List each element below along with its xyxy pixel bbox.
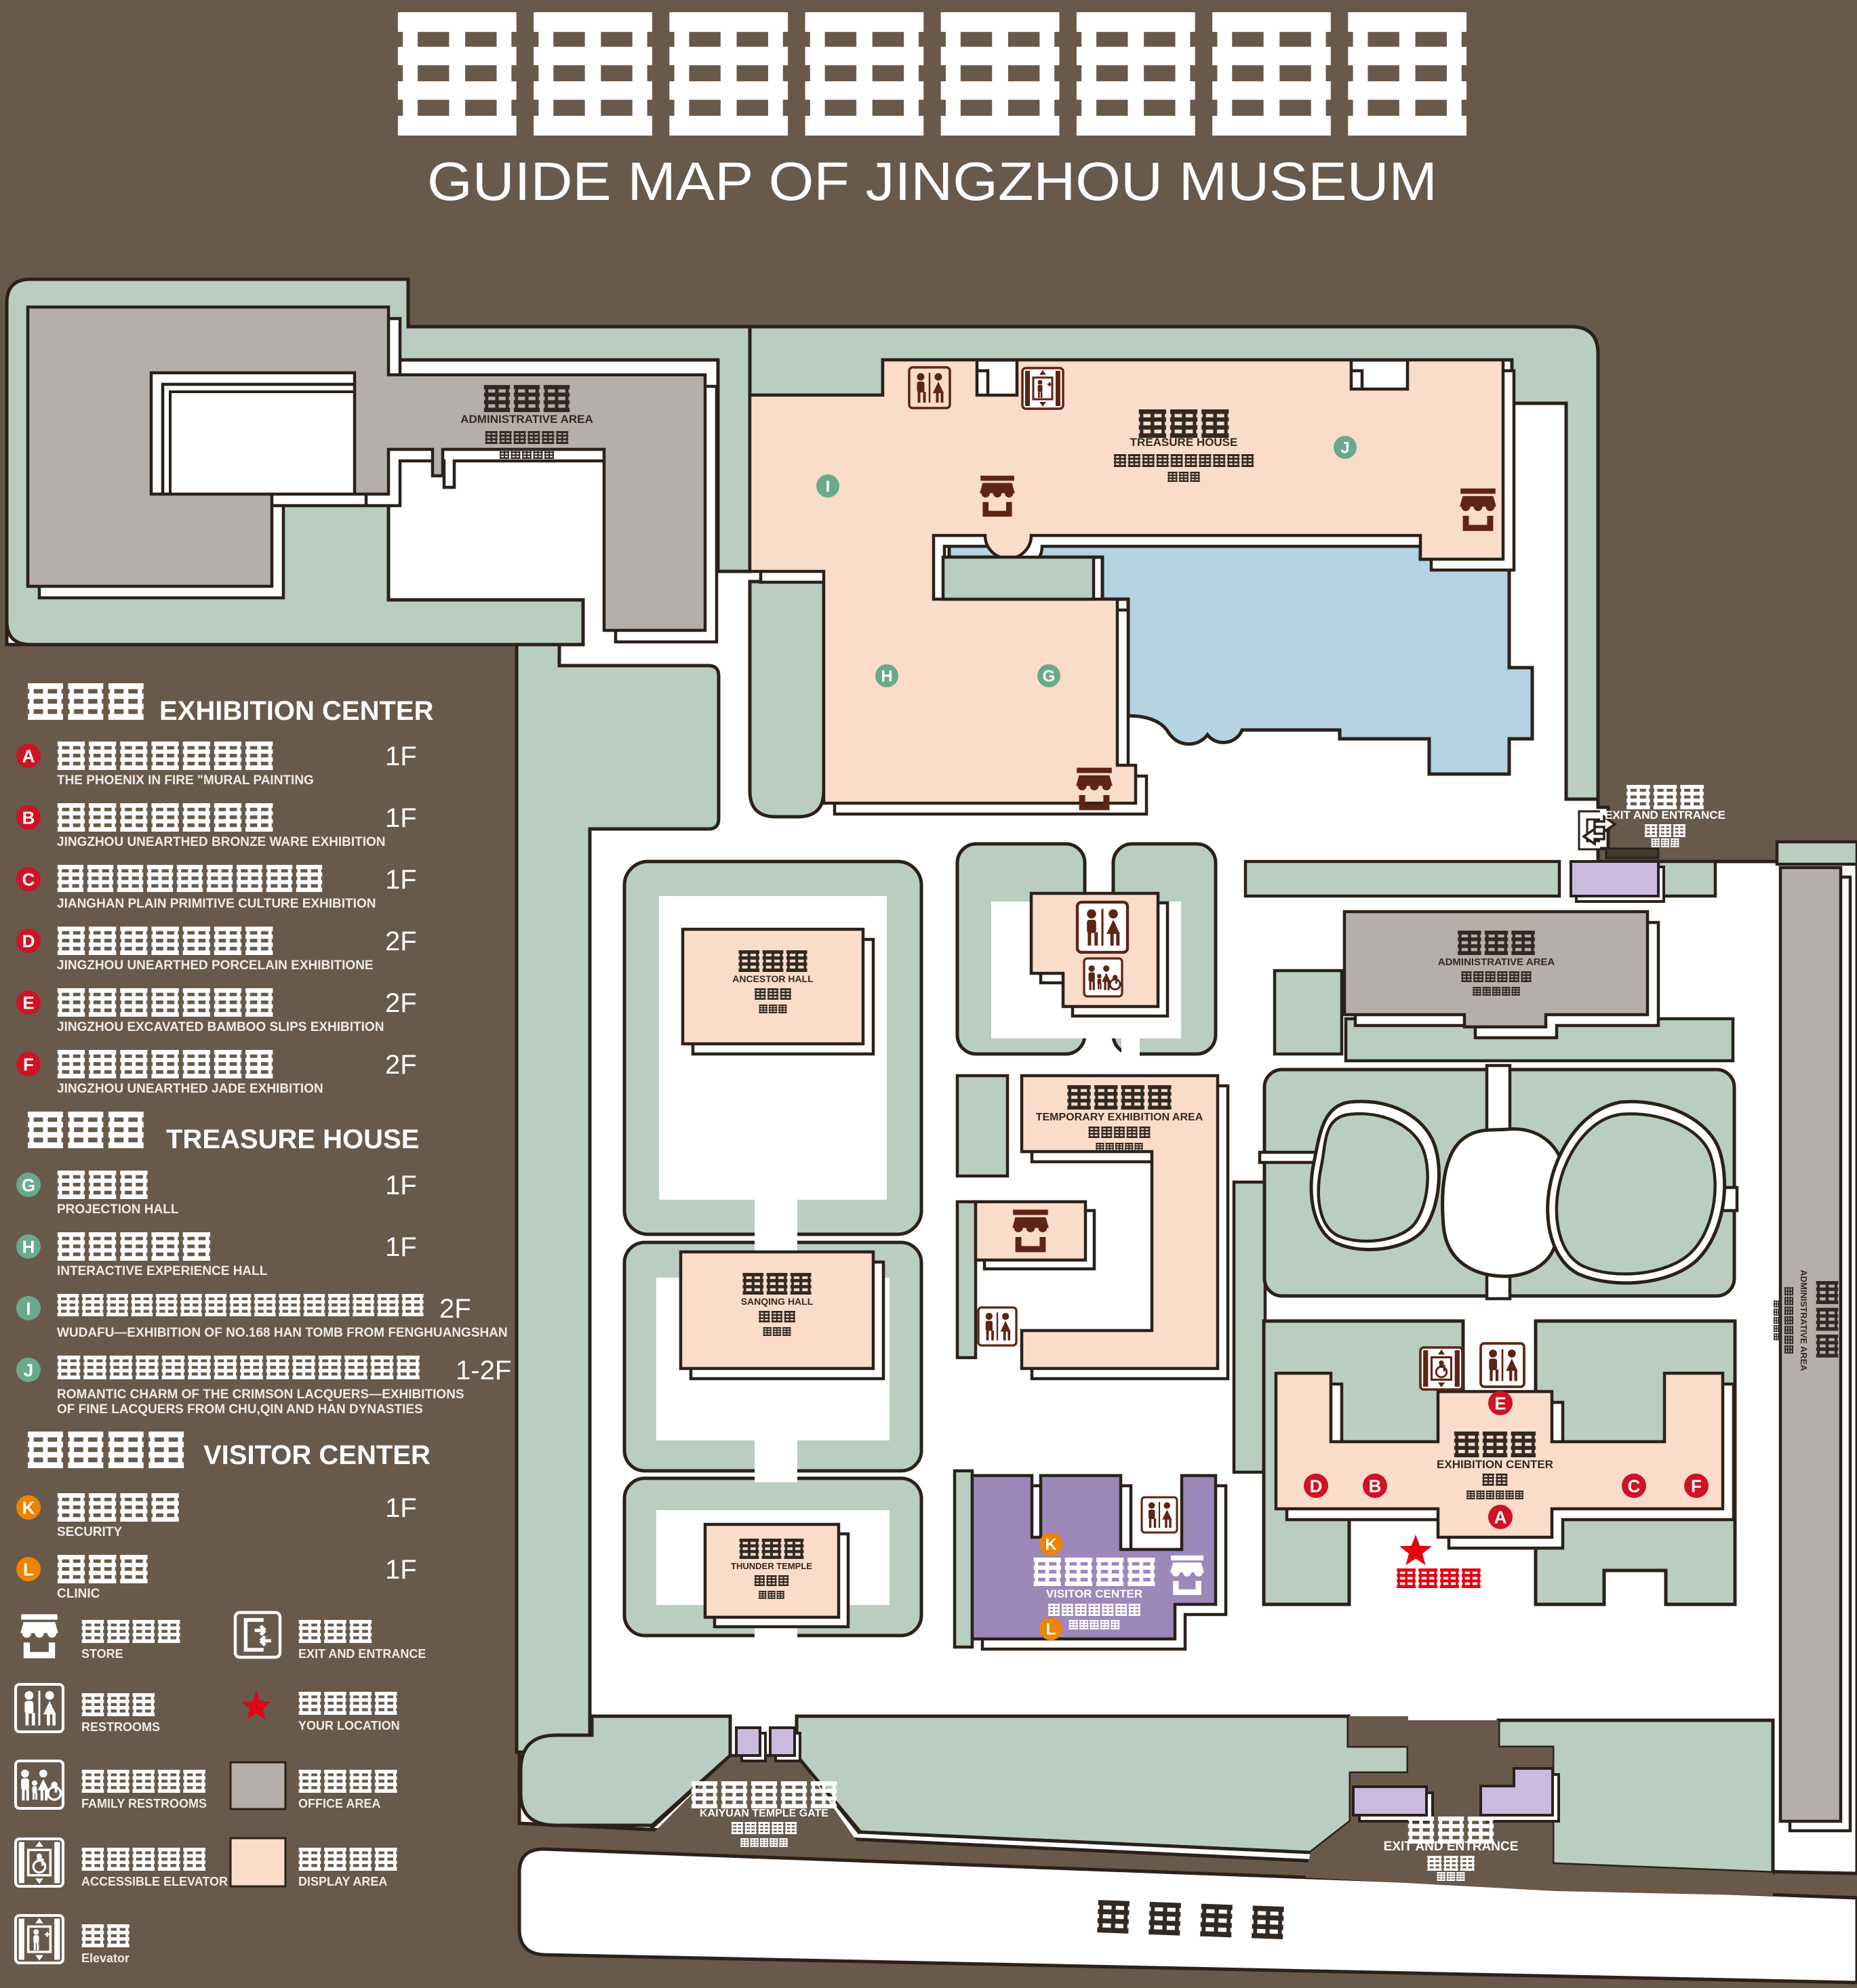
svg-text:VISITOR CENTER: VISITOR CENTER [203,1440,431,1470]
svg-text:2F: 2F [385,988,417,1018]
svg-text:E: E [22,992,34,1013]
svg-text:EXIT AND ENTRANCE: EXIT AND ENTRANCE [1384,1840,1519,1854]
svg-text:EXIT AND ENTRANCE: EXIT AND ENTRANCE [1605,809,1725,821]
svg-text:JINGZHOU UNEARTHED PORCELAIN E: JINGZHOU UNEARTHED PORCELAIN EXHIBITIONE [57,958,374,973]
svg-text:1F: 1F [385,1232,417,1262]
svg-text:KAIYUAN TEMPLE GATE: KAIYUAN TEMPLE GATE [700,1808,828,1819]
svg-text:CLINIC: CLINIC [57,1587,100,1601]
svg-text:I: I [26,1298,31,1318]
svg-text:WUDAFU—EXHIBITION OF NO.168 HA: WUDAFU—EXHIBITION OF NO.168 HAN TOMB FRO… [57,1326,508,1340]
svg-text:GUIDE MAP OF JINGZHOU MUSEUM: GUIDE MAP OF JINGZHOU MUSEUM [427,151,1437,211]
svg-text:F: F [1691,1476,1702,1496]
svg-text:H: H [22,1236,35,1257]
svg-text:ADMINISTRATIVE AREA: ADMINISTRATIVE AREA [460,413,593,426]
svg-text:I: I [826,478,831,496]
svg-text:YOUR LOCATION: YOUR LOCATION [298,1719,400,1732]
svg-text:FAMILY RESTROOMS: FAMILY RESTROOMS [81,1797,207,1810]
svg-text:A: A [22,746,35,766]
svg-text:ANCESTOR HALL: ANCESTOR HALL [732,973,814,984]
svg-text:D: D [22,931,35,951]
svg-text:OFFICE AREA: OFFICE AREA [298,1797,380,1810]
svg-text:TEMPORARY EXHIBITION AREA: TEMPORARY EXHIBITION AREA [1036,1112,1203,1123]
svg-text:1F: 1F [385,865,417,895]
svg-text:C: C [1628,1476,1641,1496]
svg-text:THE PHOENIX IN FIRE "MURAL PAI: THE PHOENIX IN FIRE "MURAL PAINTING [57,773,314,788]
svg-text:J: J [1340,439,1349,458]
svg-text:SECURITY: SECURITY [57,1525,122,1539]
svg-text:2F: 2F [385,927,417,956]
svg-text:A: A [1494,1507,1507,1527]
svg-text:INTERACTIVE EXPERIENCE HALL: INTERACTIVE EXPERIENCE HALL [57,1264,268,1278]
svg-text:EXHIBITION CENTER: EXHIBITION CENTER [1437,1458,1553,1471]
svg-text:ACCESSIBLE ELEVATOR: ACCESSIBLE ELEVATOR [81,1875,228,1888]
svg-text:L: L [1046,1621,1056,1639]
svg-text:SANQING HALL: SANQING HALL [741,1296,814,1307]
svg-text:EXHIBITION CENTER: EXHIBITION CENTER [159,696,434,726]
svg-text:RESTROOMS: RESTROOMS [81,1720,160,1734]
svg-text:ROMANTIC CHARM OF THE CRIMSON: ROMANTIC CHARM OF THE CRIMSON LACQUERS—E… [57,1387,464,1402]
svg-text:JINGZHOU UNEARTHED JADE EXHIBI: JINGZHOU UNEARTHED JADE EXHIBITION [57,1082,323,1096]
svg-text:TREASURE HOUSE: TREASURE HOUSE [166,1124,419,1154]
svg-text:OF FINE LACQUERS FROM CHU,QIN: OF FINE LACQUERS FROM CHU,QIN AND HAN DY… [57,1402,423,1417]
svg-text:1F: 1F [385,1171,417,1200]
svg-text:H: H [881,668,892,686]
svg-text:1F: 1F [385,742,417,771]
svg-text:VISITOR CENTER: VISITOR CENTER [1046,1587,1142,1600]
svg-text:J: J [24,1360,33,1380]
svg-text:G: G [22,1175,35,1195]
svg-text:B: B [1369,1476,1382,1496]
svg-text:DISPLAY AREA: DISPLAY AREA [298,1875,387,1888]
svg-text:1F: 1F [385,803,417,833]
svg-text:EXIT AND ENTRANCE: EXIT AND ENTRANCE [298,1647,426,1661]
svg-text:TREASURE HOUSE: TREASURE HOUSE [1130,436,1238,449]
svg-text:E: E [1494,1393,1506,1413]
svg-text:ADMINISTRATIVE AREA: ADMINISTRATIVE AREA [1438,956,1555,968]
svg-text:C: C [22,869,35,889]
svg-text:K: K [1045,1536,1057,1554]
svg-text:THUNDER TEMPLE: THUNDER TEMPLE [731,1561,812,1571]
svg-text:2F: 2F [439,1294,471,1324]
svg-text:1F: 1F [385,1493,417,1523]
svg-text:ADMINISTRATIVE AREA: ADMINISTRATIVE AREA [1799,1270,1809,1371]
svg-text:1-2F: 1-2F [456,1356,511,1385]
svg-text:F: F [23,1054,34,1074]
svg-text:Elevator: Elevator [81,1951,129,1965]
svg-text:JIANGHAN PLAIN PRIMITIVE CULTU: JIANGHAN PLAIN PRIMITIVE CULTURE EXHIBIT… [57,897,376,911]
svg-text:PROJECTION HALL: PROJECTION HALL [57,1202,179,1217]
svg-text:G: G [1043,668,1056,686]
svg-text:STORE: STORE [81,1647,123,1661]
svg-text:2F: 2F [385,1050,417,1080]
svg-text:JINGZHOU EXCAVATED BAMBOO SLIP: JINGZHOU EXCAVATED BAMBOO SLIPS EXHIBITI… [57,1020,384,1034]
svg-text:B: B [22,807,35,828]
svg-text:JINGZHOU UNEARTHED BRONZE WARE: JINGZHOU UNEARTHED BRONZE WARE EXHIBITIO… [57,835,386,849]
svg-text:K: K [22,1497,35,1518]
svg-text:1F: 1F [385,1555,417,1585]
svg-text:D: D [1310,1476,1323,1496]
svg-text:L: L [23,1559,34,1579]
